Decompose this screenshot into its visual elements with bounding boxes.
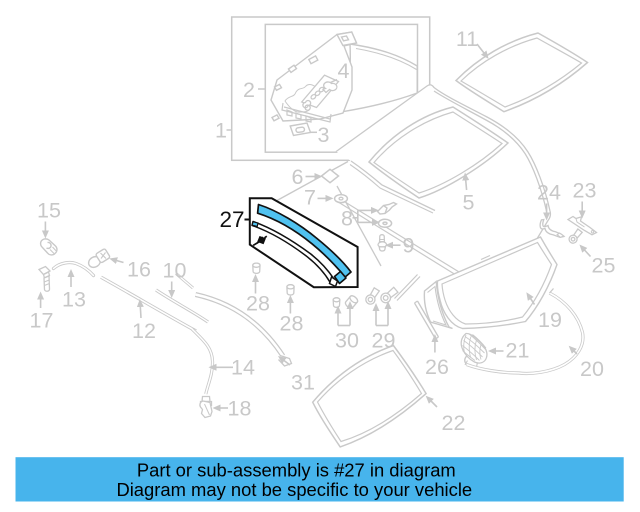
svg-text:15: 15 (37, 199, 61, 223)
svg-text:8: 8 (341, 206, 353, 230)
svg-text:31: 31 (291, 371, 315, 395)
svg-text:3: 3 (318, 123, 330, 147)
svg-text:30: 30 (335, 329, 359, 353)
svg-text:19: 19 (538, 308, 562, 332)
svg-text:28: 28 (246, 292, 270, 316)
svg-text:21: 21 (506, 339, 530, 363)
svg-text:22: 22 (442, 411, 466, 435)
svg-text:13: 13 (62, 288, 86, 312)
svg-text:2: 2 (243, 78, 255, 102)
svg-text:26: 26 (425, 355, 449, 379)
svg-text:28: 28 (280, 312, 304, 336)
svg-text:10: 10 (163, 259, 187, 283)
svg-text:12: 12 (132, 319, 156, 343)
svg-text:17: 17 (30, 309, 54, 333)
svg-text:27: 27 (219, 207, 244, 232)
svg-text:20: 20 (580, 357, 604, 381)
svg-text:18: 18 (228, 397, 252, 421)
svg-text:11: 11 (456, 27, 478, 51)
svg-text:6: 6 (292, 165, 304, 189)
svg-text:1: 1 (215, 119, 227, 143)
svg-text:4: 4 (338, 59, 350, 83)
svg-text:7: 7 (304, 185, 316, 209)
svg-text:14: 14 (231, 356, 255, 380)
svg-text:Diagram may not be specific to: Diagram may not be specific to your vehi… (116, 479, 472, 500)
svg-text:Part or sub-assembly is #27 in: Part or sub-assembly is #27 in diagram (137, 459, 456, 480)
svg-text:16: 16 (127, 258, 151, 282)
svg-text:25: 25 (592, 254, 616, 278)
svg-text:24: 24 (537, 181, 561, 205)
svg-text:23: 23 (573, 179, 597, 203)
svg-text:5: 5 (463, 191, 475, 215)
svg-text:9: 9 (403, 234, 415, 258)
